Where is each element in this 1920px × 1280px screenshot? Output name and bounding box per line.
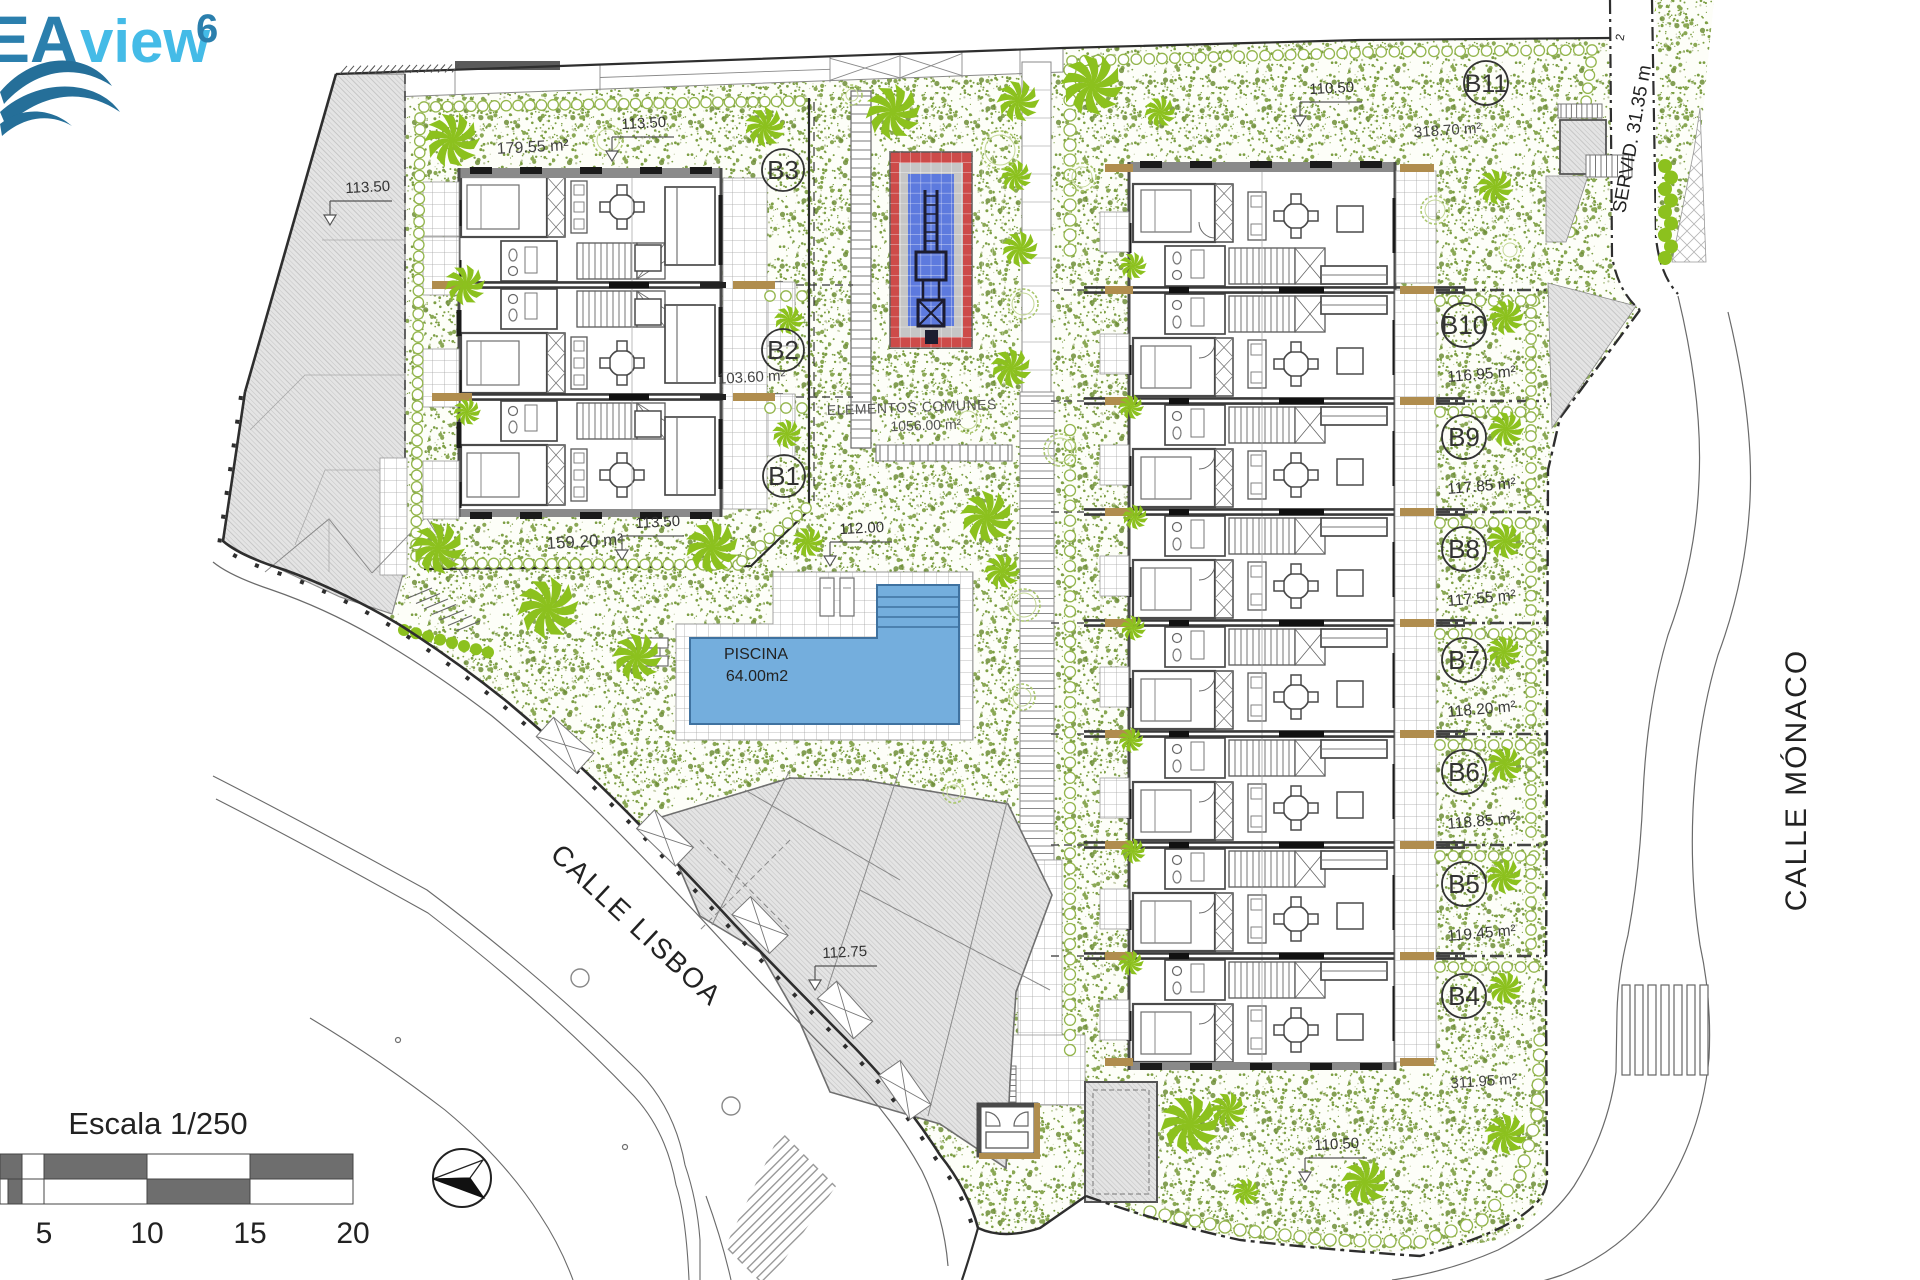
- svg-text:B9: B9: [1448, 422, 1480, 452]
- svg-text:110.50: 110.50: [1314, 1135, 1360, 1154]
- svg-text:113.50: 113.50: [345, 178, 391, 197]
- svg-text:113.50: 113.50: [621, 114, 667, 133]
- svg-text:view: view: [80, 8, 210, 75]
- svg-text:112.75: 112.75: [822, 943, 868, 962]
- svg-text:159.20 m²: 159.20 m²: [546, 530, 624, 553]
- svg-text:15: 15: [233, 1217, 266, 1250]
- svg-text:1056.00 m²: 1056.00 m²: [890, 416, 962, 434]
- svg-text:PISCINA: PISCINA: [724, 646, 788, 663]
- svg-text:103.60 m²: 103.60 m²: [718, 367, 786, 388]
- svg-text:B11: B11: [1465, 70, 1508, 98]
- svg-text:B10: B10: [1441, 310, 1487, 340]
- svg-text:B6: B6: [1448, 757, 1480, 787]
- svg-text:110.50: 110.50: [1309, 79, 1355, 98]
- svg-text:6: 6: [196, 7, 218, 51]
- svg-text:B4: B4: [1448, 981, 1480, 1011]
- svg-text:5: 5: [36, 1217, 53, 1250]
- svg-text:CALLE MÓNACO: CALLE MÓNACO: [1780, 649, 1813, 911]
- svg-text:B2: B2: [767, 335, 799, 365]
- svg-text:B3: B3: [767, 155, 799, 185]
- svg-text:Escala 1/250: Escala 1/250: [68, 1106, 247, 1141]
- svg-text:20: 20: [336, 1217, 369, 1250]
- svg-text:B7: B7: [1448, 645, 1480, 675]
- svg-text:B5: B5: [1448, 869, 1480, 899]
- svg-text:B8: B8: [1448, 534, 1480, 564]
- svg-text:B1: B1: [768, 461, 800, 491]
- svg-text:64.00m2: 64.00m2: [726, 668, 788, 685]
- svg-text:113.50: 113.50: [635, 513, 681, 532]
- svg-text:112.00: 112.00: [839, 519, 885, 538]
- svg-text:10: 10: [130, 1217, 163, 1250]
